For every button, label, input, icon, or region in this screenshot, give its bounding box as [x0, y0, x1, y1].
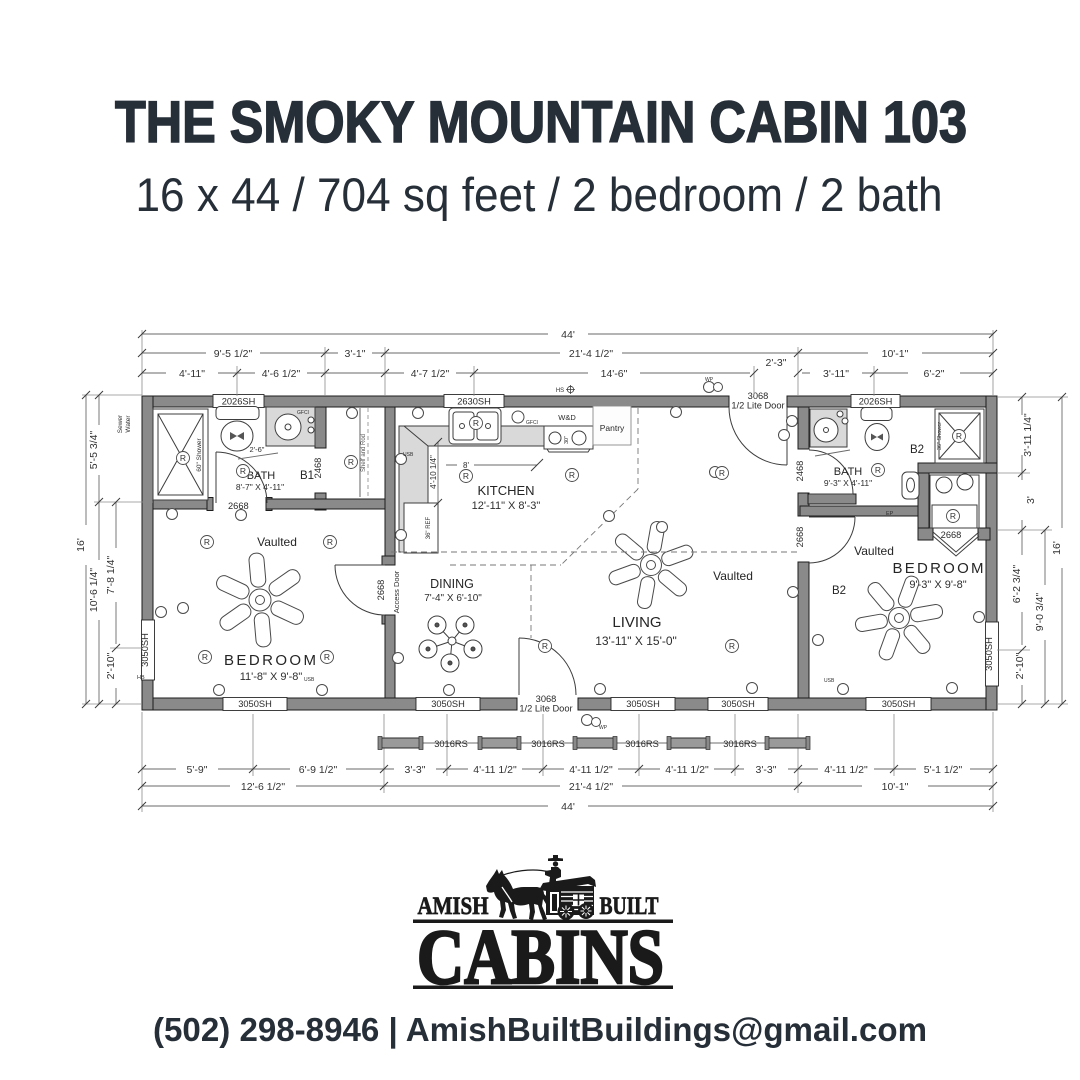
svg-text:3'-11": 3'-11" [823, 368, 849, 380]
svg-text:2026SH: 2026SH [222, 397, 256, 407]
svg-text:3'-3": 3'-3" [756, 764, 777, 776]
svg-text:BATH: BATH [834, 466, 863, 478]
svg-text:HS: HS [556, 388, 564, 394]
svg-text:1/2 Lite Door: 1/2 Lite Door [731, 401, 784, 411]
svg-text:60" Shower: 60" Shower [196, 437, 203, 471]
svg-text:3016RS: 3016RS [625, 739, 659, 749]
svg-text:WP: WP [705, 377, 714, 383]
svg-text:30": 30" [564, 436, 570, 444]
svg-text:16': 16' [75, 538, 87, 552]
svg-text:R: R [956, 431, 962, 441]
svg-text:Vaulted: Vaulted [713, 569, 753, 583]
svg-text:7'-4" X 6'-10": 7'-4" X 6'-10" [424, 593, 482, 604]
svg-text:16 x 44 / 704 sq feet / 2 bedr: 16 x 44 / 704 sq feet / 2 bedroom / 2 ba… [136, 168, 943, 221]
svg-text:R: R [542, 641, 548, 651]
svg-text:6'-2 3/4": 6'-2 3/4" [1011, 565, 1023, 604]
svg-text:R: R [327, 537, 333, 547]
svg-text:2630SH: 2630SH [457, 397, 491, 407]
svg-text:9'-3" X 9'-8": 9'-3" X 9'-8" [909, 579, 966, 591]
svg-text:B1: B1 [300, 470, 314, 482]
svg-text:10'-1": 10'-1" [882, 781, 909, 793]
svg-text:BATH: BATH [247, 470, 276, 482]
svg-text:USB: USB [403, 452, 414, 458]
svg-text:9'-0 3/4": 9'-0 3/4" [1034, 593, 1046, 632]
svg-text:2'-10": 2'-10" [105, 652, 117, 679]
svg-text:4'-11 1/2": 4'-11 1/2" [824, 764, 868, 776]
svg-text:2668: 2668 [795, 527, 805, 548]
svg-text:4'-11": 4'-11" [179, 368, 205, 380]
svg-text:5'-5 3/4": 5'-5 3/4" [88, 431, 100, 470]
svg-text:3050SH: 3050SH [721, 699, 755, 709]
svg-text:R: R [204, 537, 210, 547]
svg-text:LIVING: LIVING [612, 614, 661, 631]
svg-text:4'-11 1/2": 4'-11 1/2" [473, 764, 517, 776]
svg-text:3'-1": 3'-1" [345, 348, 366, 360]
svg-text:3050SH: 3050SH [882, 699, 916, 709]
svg-text:12'-11" X 8'-3": 12'-11" X 8'-3" [472, 500, 541, 512]
svg-text:3050SH: 3050SH [238, 699, 272, 709]
svg-text:21'-4 1/2": 21'-4 1/2" [569, 348, 614, 360]
svg-text:6'-2": 6'-2" [924, 368, 945, 380]
svg-text:2668: 2668 [376, 580, 386, 601]
svg-text:1/2 Lite Door: 1/2 Lite Door [519, 704, 572, 714]
svg-text:12'-6 1/2": 12'-6 1/2" [241, 781, 286, 793]
svg-text:R: R [719, 468, 725, 478]
svg-text:2668: 2668 [941, 530, 962, 540]
svg-text:8'-7" X 4'-11": 8'-7" X 4'-11" [236, 482, 284, 492]
svg-text:4'-6 1/2": 4'-6 1/2" [262, 368, 301, 380]
svg-text:21'-4 1/2": 21'-4 1/2" [569, 781, 614, 793]
svg-text:Vaulted: Vaulted [854, 544, 894, 558]
svg-text:R: R [569, 470, 575, 480]
svg-text:3068: 3068 [536, 694, 557, 704]
svg-text:KITCHEN: KITCHEN [477, 483, 534, 498]
svg-text:36" Shower: 36" Shower [937, 422, 943, 450]
svg-text:9'-3" X 4'-11": 9'-3" X 4'-11" [824, 478, 872, 488]
svg-text:3068: 3068 [748, 391, 769, 401]
svg-text:4'-11 1/2": 4'-11 1/2" [665, 764, 709, 776]
svg-text:4'-10 1/4": 4'-10 1/4" [429, 455, 438, 489]
svg-text:USB: USB [304, 677, 315, 683]
svg-text:USB: USB [824, 678, 835, 684]
svg-text:B2: B2 [910, 444, 924, 456]
svg-text:4'-11 1/2": 4'-11 1/2" [569, 764, 613, 776]
svg-text:3050SH: 3050SH [984, 637, 994, 671]
svg-text:R: R [348, 457, 354, 467]
svg-text:2668: 2668 [228, 501, 249, 511]
svg-text:9'-5 1/2": 9'-5 1/2" [214, 348, 253, 360]
svg-text:R: R [240, 466, 246, 476]
svg-text:16': 16' [1051, 541, 1063, 555]
svg-text:5'-1 1/2": 5'-1 1/2" [924, 764, 963, 776]
svg-text:R: R [473, 418, 479, 428]
svg-text:10'-1": 10'-1" [882, 348, 909, 360]
svg-text:R: R [463, 471, 469, 481]
svg-text:DINING: DINING [430, 577, 474, 591]
svg-text:W&D: W&D [558, 413, 576, 422]
svg-text:11'-8" X 9'-8": 11'-8" X 9'-8" [240, 671, 303, 683]
svg-text:5'-9": 5'-9" [187, 764, 208, 776]
svg-text:3050SH: 3050SH [140, 633, 150, 667]
svg-text:B2: B2 [832, 585, 846, 597]
svg-text:(502) 298-8946 | AmishBuiltBui: (502) 298-8946 | AmishBuiltBuildings@gma… [153, 1011, 927, 1048]
svg-text:EP: EP [886, 511, 894, 517]
svg-text:Shelf and Rod: Shelf and Rod [361, 434, 367, 472]
svg-text:R: R [202, 652, 208, 662]
svg-text:3050SH: 3050SH [431, 699, 465, 709]
svg-text:Sewer: Sewer [117, 414, 124, 433]
svg-text:8': 8' [463, 461, 469, 470]
svg-text:3016RS: 3016RS [723, 739, 757, 749]
svg-text:3016RS: 3016RS [531, 739, 565, 749]
svg-text:3'-3": 3'-3" [405, 764, 426, 776]
svg-text:R: R [950, 511, 956, 521]
svg-text:GFCI: GFCI [526, 420, 538, 426]
svg-text:Pantry: Pantry [600, 423, 625, 433]
svg-text:R: R [729, 641, 735, 651]
svg-text:2468: 2468 [795, 461, 805, 482]
svg-text:10'-6 1/4": 10'-6 1/4" [88, 568, 100, 613]
svg-text:44': 44' [561, 329, 575, 341]
svg-text:14'-6": 14'-6" [601, 368, 628, 380]
svg-text:R: R [875, 465, 881, 475]
svg-text:3'-11 1/4": 3'-11 1/4" [1022, 413, 1034, 457]
svg-text:44': 44' [561, 801, 575, 813]
svg-text:THE SMOKY MOUNTAIN CABIN 103: THE SMOKY MOUNTAIN CABIN 103 [115, 90, 967, 155]
svg-text:3050SH: 3050SH [626, 699, 660, 709]
svg-text:6'-9 1/2": 6'-9 1/2" [299, 764, 338, 776]
svg-text:Water: Water [125, 415, 132, 433]
svg-text:2468: 2468 [313, 458, 323, 479]
svg-text:13'-11" X 15'-0": 13'-11" X 15'-0" [595, 634, 677, 648]
svg-text:WP: WP [599, 725, 608, 731]
svg-text:Vaulted: Vaulted [257, 535, 297, 549]
svg-text:2'-6": 2'-6" [250, 445, 265, 454]
svg-text:2026SH: 2026SH [859, 397, 893, 407]
svg-text:2'-10": 2'-10" [1014, 652, 1026, 679]
svg-text:3': 3' [1025, 496, 1037, 504]
svg-text:3016RS: 3016RS [434, 739, 468, 749]
svg-text:GFCI: GFCI [297, 410, 309, 416]
svg-text:R: R [180, 453, 186, 463]
svg-text:Access Door: Access Door [392, 570, 401, 613]
svg-text:4'-7 1/2": 4'-7 1/2" [411, 368, 450, 380]
svg-text:2'-3": 2'-3" [766, 357, 787, 369]
svg-text:R: R [324, 652, 330, 662]
svg-text:HB: HB [137, 675, 145, 681]
svg-text:36" REF: 36" REF [426, 516, 432, 539]
svg-text:7'-8 1/4": 7'-8 1/4" [105, 556, 117, 595]
